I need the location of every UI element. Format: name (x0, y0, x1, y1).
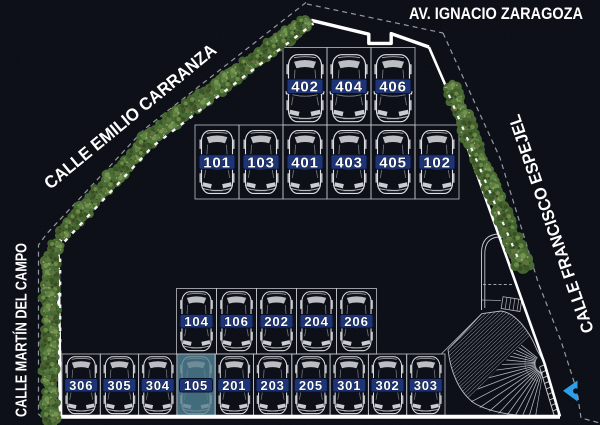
svg-text:203: 203 (261, 378, 285, 393)
svg-text:204: 204 (304, 314, 328, 329)
svg-text:101: 101 (203, 154, 230, 171)
svg-text:301: 301 (337, 378, 361, 393)
svg-text:CALLE MARTÍN DEL CAMPO: CALLE MARTÍN DEL CAMPO (12, 243, 31, 417)
svg-text:306: 306 (69, 378, 93, 393)
svg-text:305: 305 (107, 378, 131, 393)
svg-text:104: 104 (184, 314, 208, 329)
svg-text:105: 105 (184, 378, 208, 393)
svg-text:404: 404 (335, 79, 362, 96)
svg-text:202: 202 (264, 314, 288, 329)
svg-text:401: 401 (291, 154, 318, 171)
svg-text:403: 403 (335, 154, 362, 171)
svg-text:304: 304 (146, 378, 170, 393)
svg-text:303: 303 (414, 378, 438, 393)
svg-text:402: 402 (291, 79, 318, 96)
svg-text:302: 302 (375, 378, 399, 393)
svg-text:406: 406 (379, 79, 406, 96)
svg-text:106: 106 (224, 314, 248, 329)
svg-text:102: 102 (423, 154, 450, 171)
svg-text:405: 405 (379, 154, 406, 171)
svg-text:201: 201 (222, 378, 246, 393)
svg-text:205: 205 (299, 378, 323, 393)
svg-text:206: 206 (344, 314, 368, 329)
svg-text:103: 103 (247, 154, 274, 171)
svg-text:AV. IGNACIO ZARAGOZA: AV. IGNACIO ZARAGOZA (409, 5, 583, 23)
